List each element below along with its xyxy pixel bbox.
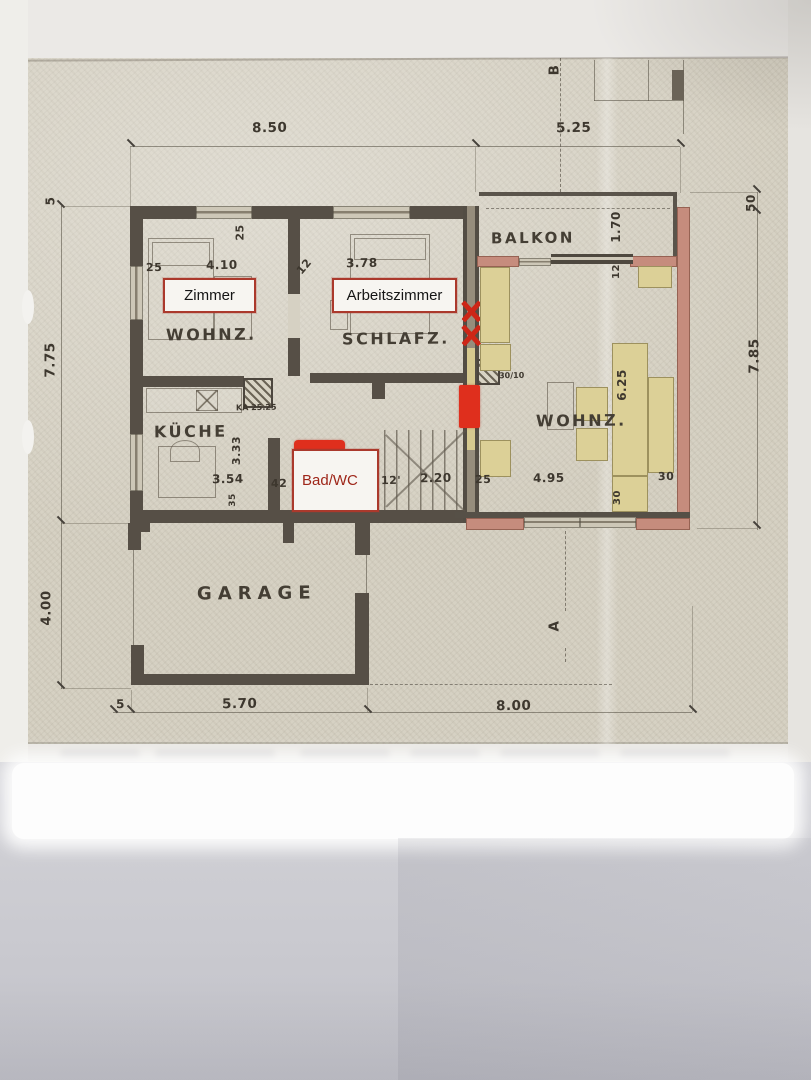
dim-ext [367,688,368,712]
dim-bottom-span: 8.00 [496,698,532,715]
dim-wall30: 30 [658,470,675,483]
section-b-label: B [546,65,562,76]
furniture-cabinet-tall [480,267,510,343]
room-label-wohnz-left: WOHNZ. [166,325,257,345]
dim-bottom-garage: 5.70 [222,696,258,713]
section-a-label: A [546,621,562,632]
blurred-text-fragment [60,750,140,759]
wall-schlafz-bottom [310,373,467,383]
furniture-armchair-2 [576,428,608,461]
dim-ext [475,147,476,192]
dim-ext [690,192,757,193]
garage-thin-left [133,550,134,646]
overlay-label-arbeitszimmer-text: Arbeitszimmer [347,287,443,304]
roof-line-v2 [648,60,649,101]
window-top-left [196,206,252,219]
roof-chimney [672,70,684,100]
dim-arbeits-width: 3.78 [346,256,378,271]
dim-line-top [130,146,680,147]
property-dashed-line [370,684,612,685]
porch-post-right [355,522,370,555]
room-label-balkon: BALKON [491,229,575,248]
room-label-schlafz: SCHLAFZ. [342,329,450,349]
dim-stairs220: 2.20 [420,471,452,486]
dim-line-bottom [113,712,692,713]
kitchen-chair [170,440,200,462]
wall-top [130,206,479,219]
blurred-text-fragment [410,750,480,759]
dim-ext [692,606,693,712]
blurred-text-fragment [500,750,600,759]
punch-hole-bottom [22,420,34,454]
window-left-kitchen [130,434,143,491]
dim-line-left [61,206,62,689]
dim-sofa625: 6.25 [615,369,629,401]
dim-ext [61,688,131,689]
wall-schlafz-stub [372,383,385,399]
balcony-window [519,258,551,266]
dim-right-offset: 50 [744,194,758,212]
dim-wohnz-width: 4.95 [533,471,565,486]
dim-bench30: 30 [612,490,623,505]
porch-post-left [283,523,294,543]
wall-bottom-right-pink2 [636,518,690,530]
kitchen-counter [146,388,242,413]
roof-line-v1 [594,60,595,101]
overlay-label-zimmer-text: Zimmer [184,287,235,304]
furniture-sofa [612,343,648,476]
dim-top-span: 8.50 [252,120,288,137]
overlay-label-arbeitszimmer: Arbeitszimmer [332,278,457,313]
wall-yellow-segment-1 [467,348,475,388]
whiteout-band [12,763,794,839]
dim-ext [697,528,757,529]
room-label-wohnz-right: WOHNZ. [536,411,627,431]
dim-left-garage: 4.00 [39,590,55,625]
dim-left-offset: 5 [43,197,57,206]
furniture-sideboard-top [638,266,672,288]
photo-corner-shadow [560,0,811,150]
section-a-line [565,531,566,611]
garage-wall-right [355,593,369,685]
punch-hole-top [22,290,34,324]
garage-wall-bottom [131,674,367,685]
section-b-line [560,58,561,192]
overlay-label-zimmer: Zimmer [163,278,256,313]
dim-left-height: 7.75 [43,342,59,377]
dim-ext [130,147,131,206]
dim-wall25-mid: 25 [475,473,492,486]
dim-ext [680,147,681,193]
dim-ext [61,523,130,524]
balcony-dashed-line [486,208,670,209]
dim-flur42: 42 [271,477,288,490]
window-bottom-right-2 [580,517,636,528]
dim-ext [61,206,130,207]
dim-top-span-right: 5.25 [556,120,592,137]
dim-kueche-width: 3.54 [212,472,244,487]
wall-yellow-segment-2 [467,428,475,450]
window-top-right [333,206,410,219]
roof-line-h [594,100,684,101]
wall-bottom-right-pink1 [466,518,524,530]
overlay-label-badwc: Bad/WC [292,449,379,512]
blurred-text-fragment [620,750,730,759]
furniture-wall-unit [648,377,674,473]
wall-corridor [268,438,280,513]
bottom-vignette [0,980,811,1080]
wall-right-pink [677,207,690,530]
balcony-rail-left [477,256,519,267]
room-label-kueche: KÜCHE [154,422,228,442]
dim-wall25-vert: 25 [234,224,247,240]
dim-zimmer-width: 4.10 [206,258,238,273]
dim-ext [131,690,132,712]
furniture-cabinet-low [480,440,511,477]
dim-balcony-depth: 1.70 [609,211,623,243]
dim-wall35: 35 [228,493,238,507]
section-a-line2 [565,648,566,662]
balcony-top-wall [479,192,677,196]
window-left-upper [130,266,143,320]
window-bottom-right-1 [524,517,580,528]
page-left-margin [0,0,28,762]
garage-thin-right [366,555,367,593]
dim-bottom-offset: 5 [116,697,125,711]
overlay-label-badwc-text: Bad/WC [302,472,358,489]
room-label-garage: GARAGE [197,582,317,604]
red-marker-wall [459,385,480,428]
dim-flur12: 12' [381,474,401,487]
label-chimney-kitchen: KA 25.25 [236,403,277,413]
blurred-text-fragment [155,750,275,759]
blurred-text-fragment [300,750,390,759]
dim-wall25-top: 25 [146,261,163,274]
dim-kueche-height: 3.33 [230,436,243,465]
kitchen-sink [196,390,218,411]
garage-stub-topleft-h [128,523,150,532]
dim-right-height: 7.85 [747,338,763,373]
wall-kueche-divider [143,376,244,387]
floorplan-photo: 8.50 5.25 5 7.75 4.00 50 7.85 5 5.70 8.0… [0,0,811,1080]
balcony-door [551,254,633,264]
furniture-cabinet-mid [480,344,511,371]
dim-balcony-wall: 12 [611,264,622,279]
door-gap-zimmer [288,294,300,338]
